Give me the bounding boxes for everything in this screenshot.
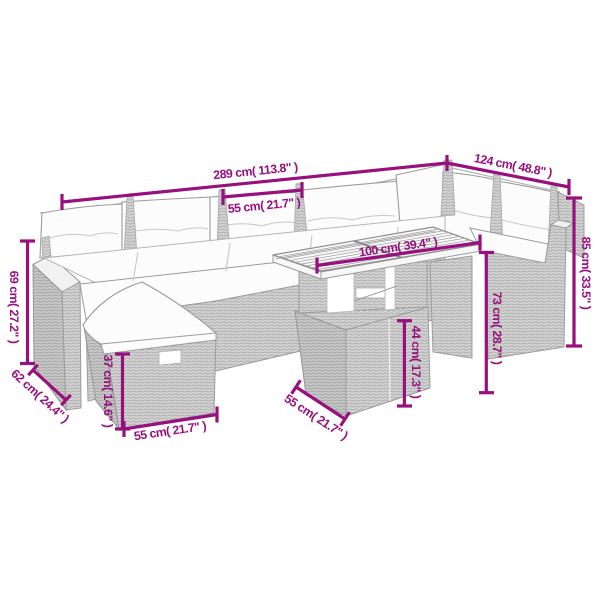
- svg-text:44 cm( 17.3" ): 44 cm( 17.3" ): [409, 326, 423, 399]
- svg-text:37 cm( 14.6" ): 37 cm( 14.6" ): [101, 355, 115, 428]
- svg-text:85 cm( 33.5" ): 85 cm( 33.5" ): [579, 237, 593, 310]
- svg-text:69 cm( 27.2" ): 69 cm( 27.2" ): [7, 271, 21, 344]
- svg-text:73 cm( 28.7" ): 73 cm( 28.7" ): [490, 292, 504, 365]
